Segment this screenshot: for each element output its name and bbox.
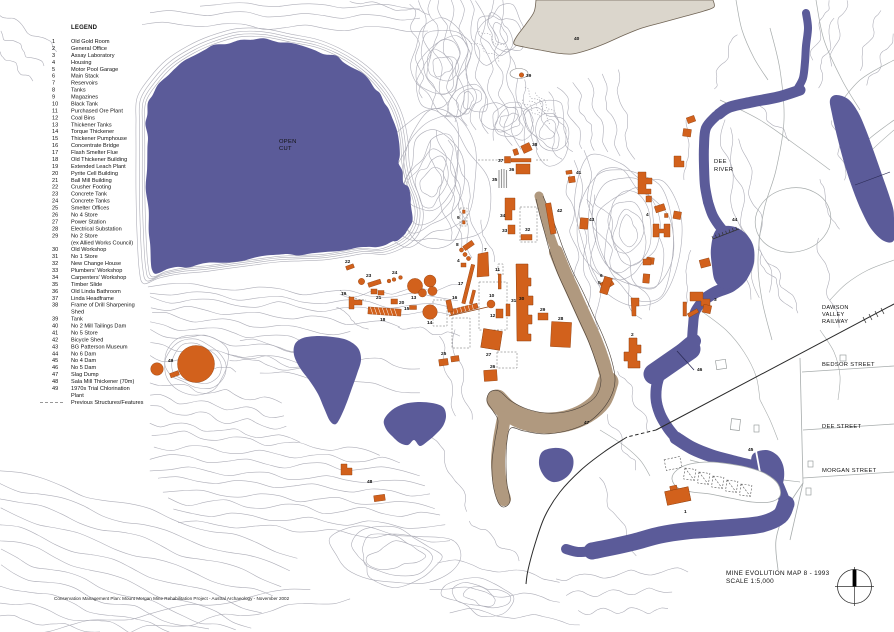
- svg-text:34: 34: [52, 275, 58, 281]
- svg-text:3: 3: [52, 53, 55, 59]
- svg-text:14: 14: [52, 129, 58, 135]
- svg-text:22: 22: [52, 185, 58, 191]
- svg-text:41: 41: [576, 170, 582, 176]
- svg-text:39: 39: [526, 73, 532, 79]
- svg-text:8: 8: [456, 242, 459, 248]
- svg-text:Concrete Tanks: Concrete Tanks: [71, 199, 110, 205]
- svg-text:45: 45: [748, 447, 754, 453]
- svg-text:37: 37: [498, 158, 504, 164]
- svg-text:48: 48: [367, 479, 373, 485]
- svg-text:9: 9: [52, 95, 55, 101]
- svg-text:44: 44: [732, 217, 738, 223]
- svg-text:Timber Slide: Timber Slide: [71, 282, 102, 288]
- svg-text:10: 10: [52, 102, 58, 108]
- svg-text:No 1 Store: No 1 Store: [71, 254, 98, 260]
- svg-text:Old Workshop: Old Workshop: [71, 247, 106, 253]
- svg-text:Assay Laboratory: Assay Laboratory: [71, 53, 115, 59]
- svg-text:32: 32: [52, 261, 58, 267]
- svg-text:VALLEY: VALLEY: [822, 312, 845, 318]
- svg-text:25: 25: [52, 206, 58, 212]
- svg-text:5: 5: [598, 280, 601, 286]
- svg-text:Frame of Drill Sharpening: Frame of Drill Sharpening: [71, 303, 135, 309]
- svg-text:Motor Pool Garage: Motor Pool Garage: [71, 67, 118, 73]
- svg-text:7: 7: [52, 81, 55, 87]
- svg-text:Black Tank: Black Tank: [71, 102, 98, 108]
- svg-text:23: 23: [366, 273, 372, 279]
- svg-text:12: 12: [52, 115, 58, 121]
- svg-text:Crusher Footing: Crusher Footing: [71, 185, 111, 191]
- svg-text:5: 5: [52, 67, 55, 73]
- svg-text:OPEN: OPEN: [279, 139, 297, 145]
- svg-text:20: 20: [52, 171, 58, 177]
- svg-text:16: 16: [52, 143, 58, 149]
- svg-text:Linda Headframe: Linda Headframe: [71, 296, 114, 302]
- svg-text:43: 43: [52, 344, 58, 350]
- svg-text:LEGEND: LEGEND: [71, 25, 98, 31]
- svg-text:Purchased Ore Plant: Purchased Ore Plant: [71, 108, 123, 114]
- svg-text:Slag Dump: Slag Dump: [71, 372, 99, 378]
- svg-text:No 4 Store: No 4 Store: [71, 213, 98, 219]
- svg-text:34: 34: [500, 213, 506, 219]
- svg-text:4: 4: [52, 60, 55, 66]
- svg-text:38: 38: [532, 142, 538, 148]
- svg-text:Plumbers' Workshop: Plumbers' Workshop: [71, 268, 122, 274]
- svg-text:27: 27: [486, 352, 492, 358]
- svg-text:Electrical Substation: Electrical Substation: [71, 226, 122, 232]
- svg-text:DEE: DEE: [714, 159, 727, 165]
- svg-text:28: 28: [52, 226, 58, 232]
- svg-text:Previous Structures/Features: Previous Structures/Features: [71, 400, 144, 406]
- svg-text:2: 2: [631, 332, 634, 338]
- svg-text:26: 26: [52, 213, 58, 219]
- svg-text:1: 1: [52, 39, 55, 45]
- svg-text:30: 30: [52, 247, 58, 253]
- svg-text:6: 6: [600, 273, 603, 279]
- svg-text:2: 2: [52, 46, 55, 52]
- svg-text:26: 26: [490, 364, 496, 370]
- svg-text:3: 3: [714, 297, 717, 303]
- svg-text:18: 18: [52, 157, 58, 163]
- svg-text:27: 27: [52, 219, 58, 225]
- svg-text:33: 33: [52, 268, 58, 274]
- svg-text:New Change House: New Change House: [71, 261, 121, 267]
- svg-text:17: 17: [52, 150, 58, 156]
- svg-text:23: 23: [52, 192, 58, 198]
- svg-text:24: 24: [52, 199, 58, 205]
- svg-text:30: 30: [519, 296, 525, 302]
- svg-text:46: 46: [697, 367, 703, 373]
- svg-text:48: 48: [52, 379, 58, 385]
- svg-text:11: 11: [52, 108, 58, 114]
- svg-text:7: 7: [484, 247, 487, 253]
- svg-text:28: 28: [558, 316, 564, 322]
- svg-text:16: 16: [452, 295, 458, 301]
- svg-text:43: 43: [589, 217, 595, 223]
- svg-text:Main Stack: Main Stack: [71, 74, 99, 80]
- svg-text:RAILWAY: RAILWAY: [822, 319, 848, 325]
- svg-text:32: 32: [525, 227, 531, 233]
- svg-text:Concentrate Bridge: Concentrate Bridge: [71, 143, 119, 149]
- svg-text:BEDSOR STREET: BEDSOR STREET: [822, 362, 875, 368]
- svg-text:Housing: Housing: [71, 60, 92, 66]
- svg-text:Thickener Pumphouse: Thickener Pumphouse: [71, 136, 127, 142]
- svg-text:8: 8: [52, 88, 55, 94]
- svg-text:No 5 Dam: No 5 Dam: [71, 365, 97, 371]
- svg-text:Power Station: Power Station: [71, 219, 106, 225]
- svg-text:21: 21: [52, 178, 58, 184]
- svg-text:1970s Trial Chlorination: 1970s Trial Chlorination: [71, 386, 130, 392]
- svg-text:MORGAN STREET: MORGAN STREET: [822, 468, 877, 474]
- svg-text:15: 15: [52, 136, 58, 142]
- svg-text:46: 46: [52, 365, 58, 371]
- svg-text:Concrete Tank: Concrete Tank: [71, 192, 107, 198]
- svg-text:25: 25: [441, 351, 447, 357]
- svg-text:Coal Bins: Coal Bins: [71, 115, 95, 121]
- svg-text:29: 29: [52, 233, 58, 239]
- svg-text:31: 31: [52, 254, 58, 260]
- svg-text:6: 6: [52, 74, 55, 80]
- svg-text:41: 41: [52, 331, 58, 337]
- svg-text:Pyrite Cell Building: Pyrite Cell Building: [71, 171, 118, 177]
- svg-text:DEE STREET: DEE STREET: [822, 424, 862, 430]
- svg-text:19: 19: [341, 291, 347, 297]
- svg-text:40: 40: [574, 36, 580, 42]
- svg-text:Carpenters' Workshop: Carpenters' Workshop: [71, 275, 126, 281]
- svg-text:24: 24: [392, 270, 398, 276]
- svg-text:RIVER: RIVER: [714, 167, 733, 173]
- svg-text:Tanks: Tanks: [71, 88, 86, 94]
- svg-text:22: 22: [345, 259, 351, 265]
- svg-text:11: 11: [495, 267, 500, 273]
- svg-text:Old Linda Bathroom: Old Linda Bathroom: [71, 289, 121, 295]
- svg-text:SCALE 1:5,000: SCALE 1:5,000: [726, 578, 774, 585]
- svg-text:10: 10: [489, 293, 495, 299]
- svg-text:No 6 Dam: No 6 Dam: [71, 351, 97, 357]
- svg-text:Torque Thickener: Torque Thickener: [71, 129, 114, 135]
- svg-text:38: 38: [52, 303, 58, 309]
- svg-text:4: 4: [646, 212, 649, 218]
- svg-text:31: 31: [511, 298, 517, 304]
- svg-text:Old Thickener Building: Old Thickener Building: [71, 157, 127, 163]
- svg-text:Smelter Offices: Smelter Offices: [71, 206, 109, 212]
- svg-text:42: 42: [52, 337, 58, 343]
- svg-text:Ball Mill Building: Ball Mill Building: [71, 178, 112, 184]
- svg-text:35: 35: [492, 177, 498, 183]
- svg-text:33: 33: [502, 228, 508, 234]
- svg-text:MINE EVOLUTION MAP 8 - 1993: MINE EVOLUTION MAP 8 - 1993: [726, 570, 830, 577]
- svg-text:18: 18: [380, 317, 386, 323]
- svg-text:DAWSON: DAWSON: [822, 305, 849, 311]
- svg-text:20: 20: [399, 300, 405, 306]
- svg-text:14: 14: [427, 320, 433, 326]
- svg-text:Bicycle Shed: Bicycle Shed: [71, 337, 103, 343]
- svg-text:No 2 Store: No 2 Store: [71, 233, 98, 239]
- svg-text:45: 45: [52, 358, 58, 364]
- svg-text:Shed: Shed: [71, 310, 84, 316]
- svg-text:Extended Leach Plant: Extended Leach Plant: [71, 164, 126, 170]
- svg-text:15: 15: [404, 306, 410, 312]
- svg-text:1: 1: [684, 509, 687, 515]
- svg-text:39: 39: [52, 317, 58, 323]
- svg-text:29: 29: [540, 307, 546, 313]
- svg-text:(ex Allied Works Council): (ex Allied Works Council): [71, 240, 133, 246]
- svg-text:No 5 Store: No 5 Store: [71, 331, 98, 337]
- svg-text:17: 17: [458, 281, 464, 287]
- svg-text:Old Gold Room: Old Gold Room: [71, 39, 110, 45]
- svg-text:13: 13: [52, 122, 58, 128]
- svg-text:4: 4: [457, 258, 460, 264]
- svg-text:13: 13: [411, 295, 417, 301]
- svg-text:Flash Smelter Flue: Flash Smelter Flue: [71, 150, 118, 156]
- svg-text:35: 35: [52, 282, 58, 288]
- svg-text:19: 19: [52, 164, 58, 170]
- svg-text:Sala Mill Thickener (70m): Sala Mill Thickener (70m): [71, 379, 134, 385]
- svg-text:49: 49: [52, 386, 58, 392]
- svg-text:CUT: CUT: [279, 146, 292, 152]
- svg-text:21: 21: [376, 295, 382, 301]
- svg-text:BG Patterson Museum: BG Patterson Museum: [71, 344, 128, 350]
- svg-text:No 4 Dam: No 4 Dam: [71, 358, 97, 364]
- svg-text:40: 40: [52, 324, 58, 330]
- svg-text:42: 42: [557, 208, 563, 214]
- svg-text:Thickener Tanks: Thickener Tanks: [71, 122, 112, 128]
- svg-text:47: 47: [52, 372, 58, 378]
- svg-text:Plant: Plant: [71, 393, 84, 399]
- svg-text:12: 12: [490, 313, 496, 319]
- svg-text:9: 9: [457, 215, 460, 221]
- svg-text:47: 47: [584, 420, 590, 426]
- svg-text:Magazines: Magazines: [71, 95, 98, 101]
- svg-text:36: 36: [509, 167, 515, 173]
- svg-text:No 2 Mill Tailings Dam: No 2 Mill Tailings Dam: [71, 324, 127, 330]
- svg-text:Tank: Tank: [71, 317, 83, 323]
- svg-text:49: 49: [168, 358, 174, 364]
- svg-text:General Office: General Office: [71, 46, 107, 52]
- svg-text:Reservoirs: Reservoirs: [71, 81, 98, 87]
- svg-text:44: 44: [52, 351, 58, 357]
- svg-text:37: 37: [52, 296, 58, 302]
- svg-text:Conservation Management Plan:: Conservation Management Plan: Mount Morg…: [54, 596, 290, 601]
- svg-text:36: 36: [52, 289, 58, 295]
